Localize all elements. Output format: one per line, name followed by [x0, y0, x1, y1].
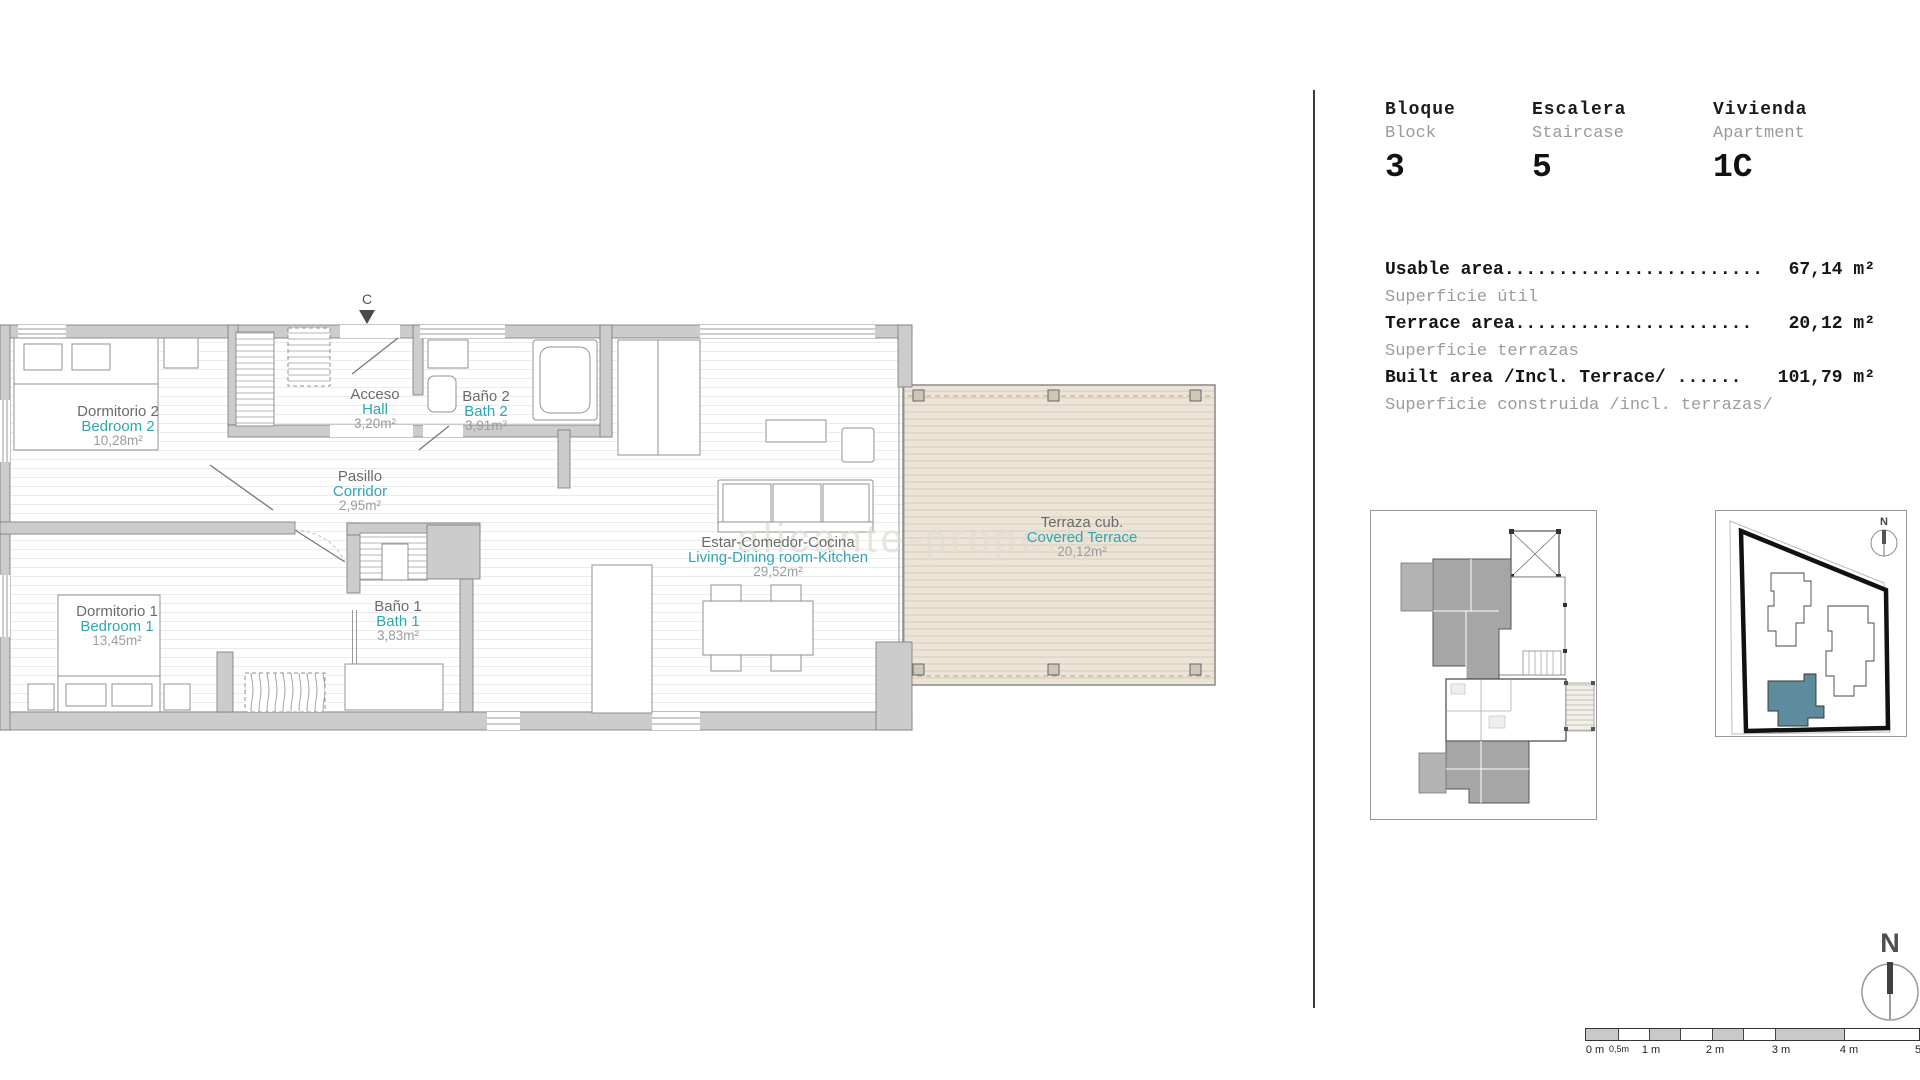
scale-tick-label: 0,5m: [1609, 1044, 1629, 1054]
scale-bar: 0 m 0,5m 1 m 2 m 3 m 4 m 5: [1585, 1028, 1920, 1064]
room-label-bedroom2: Dormitorio 2 Bedroom 2 10,28m²: [77, 405, 159, 449]
scale-tick-label: 3 m: [1772, 1044, 1790, 1056]
block-value: 3: [1385, 148, 1456, 188]
apartment-value: 1C: [1713, 148, 1807, 188]
scale-bar-labels: 0 m 0,5m 1 m 2 m 3 m 4 m 5: [1585, 1044, 1920, 1060]
room-name-en: Covered Terrace: [1027, 531, 1138, 546]
room-label-hall: Acceso Hall 3,20m²: [350, 388, 399, 432]
room-label-terrace: Terraza cub. Covered Terrace 20,12m²: [1027, 516, 1138, 560]
room-label-bath2: Baño 2 Bath 2 3,91m²: [462, 390, 510, 434]
site-compass-icon: N: [1871, 516, 1897, 556]
room-name-en: Corridor: [333, 485, 387, 500]
room-label-living: Estar-Comedor-Cocina Living-Dining room-…: [688, 536, 868, 580]
room-area: 13,45m²: [76, 634, 158, 649]
site-plan-drawing: N: [1716, 511, 1906, 736]
terrace-area-value: 20,12 m²: [1789, 311, 1875, 338]
floor-key-plan: [1370, 510, 1597, 820]
terrace-area-sub: Superficie terrazas: [1385, 338, 1875, 365]
section-marker-arrow-icon: [359, 310, 375, 324]
north-compass-icon: N: [1852, 922, 1920, 1027]
terrace-area-label: Terrace area: [1385, 311, 1515, 338]
room-name-en: Bath 2: [462, 405, 510, 420]
room-area: 20,12m²: [1027, 545, 1138, 560]
block-label-en: Block: [1385, 122, 1456, 146]
room-area: 3,83m²: [374, 629, 422, 644]
built-area-value: 101,79 m²: [1778, 365, 1875, 392]
dot-leader: ......................: [1515, 311, 1753, 338]
room-area: 3,20m²: [350, 417, 399, 432]
site-plan: N: [1715, 510, 1907, 737]
staircase-value: 5: [1532, 148, 1626, 188]
built-area-sub: Superficie construida /incl. terrazas/: [1385, 392, 1875, 419]
usable-area-label: Usable area: [1385, 257, 1504, 284]
scale-tick-label: 5: [1915, 1044, 1920, 1056]
block-info: Bloque Block 3: [1385, 98, 1456, 188]
usable-area-value: 67,14 m²: [1789, 257, 1875, 284]
building-outline-2: [1826, 606, 1874, 696]
room-name-en: Bath 1: [374, 615, 422, 630]
scale-tick-label: 2 m: [1706, 1044, 1724, 1056]
staircase-info: Escalera Staircase 5: [1532, 98, 1626, 188]
room-name-en: Bedroom 1: [76, 620, 158, 635]
dot-leader: ........................: [1504, 257, 1763, 284]
scale-tick-label: 4 m: [1840, 1044, 1858, 1056]
room-area: 10,28m²: [77, 434, 159, 449]
room-name-en: Bedroom 2: [77, 420, 159, 435]
apartment-info: Vivienda Apartment 1C: [1713, 98, 1807, 188]
vertical-divider: [1313, 90, 1315, 1008]
built-area-row: Built area /Incl. Terrace/ ...... 101,79…: [1385, 365, 1875, 392]
room-area: 3,91m²: [462, 419, 510, 434]
staircase-label-en: Staircase: [1532, 122, 1626, 146]
apartment-label-en: Apartment: [1713, 122, 1807, 146]
terrace-area-row: Terrace area...................... 20,12…: [1385, 311, 1875, 338]
built-area-label: Built area /Incl. Terrace/: [1385, 365, 1677, 392]
room-label-bedroom1: Dormitorio 1 Bedroom 1 13,45m²: [76, 605, 158, 649]
building-outline-1: [1768, 573, 1811, 646]
floor-key-plan-drawing: [1371, 511, 1596, 819]
scale-tick-label: 1 m: [1642, 1044, 1660, 1056]
room-area: 2,95m²: [333, 499, 387, 514]
room-name-en: Living-Dining room-Kitchen: [688, 551, 868, 566]
scale-bar-segments: [1585, 1028, 1920, 1041]
scale-tick-label: 0 m: [1586, 1044, 1604, 1056]
usable-area-sub: Superficie útil: [1385, 284, 1875, 311]
section-marker: C: [359, 291, 375, 324]
dot-leader: ......: [1677, 365, 1742, 392]
block-label-es: Bloque: [1385, 98, 1456, 122]
apartment-label-es: Vivienda: [1713, 98, 1807, 122]
north-compass-label: N: [1880, 928, 1900, 958]
staircase-label-es: Escalera: [1532, 98, 1626, 122]
section-marker-label: C: [362, 291, 372, 307]
usable-area-row: Usable area........................ 67,1…: [1385, 257, 1875, 284]
room-name-en: Hall: [350, 403, 399, 418]
highlighted-block: [1768, 674, 1824, 726]
area-summary: Usable area........................ 67,1…: [1385, 257, 1875, 419]
room-label-bath1: Baño 1 Bath 1 3,83m²: [374, 600, 422, 644]
plan-sheet: alicante-property C Dormitorio 2 Bedroom…: [0, 0, 1920, 1080]
room-area: 29,52m²: [688, 565, 868, 580]
site-compass-label: N: [1880, 516, 1888, 528]
room-label-corridor: Pasillo Corridor 2,95m²: [333, 470, 387, 514]
